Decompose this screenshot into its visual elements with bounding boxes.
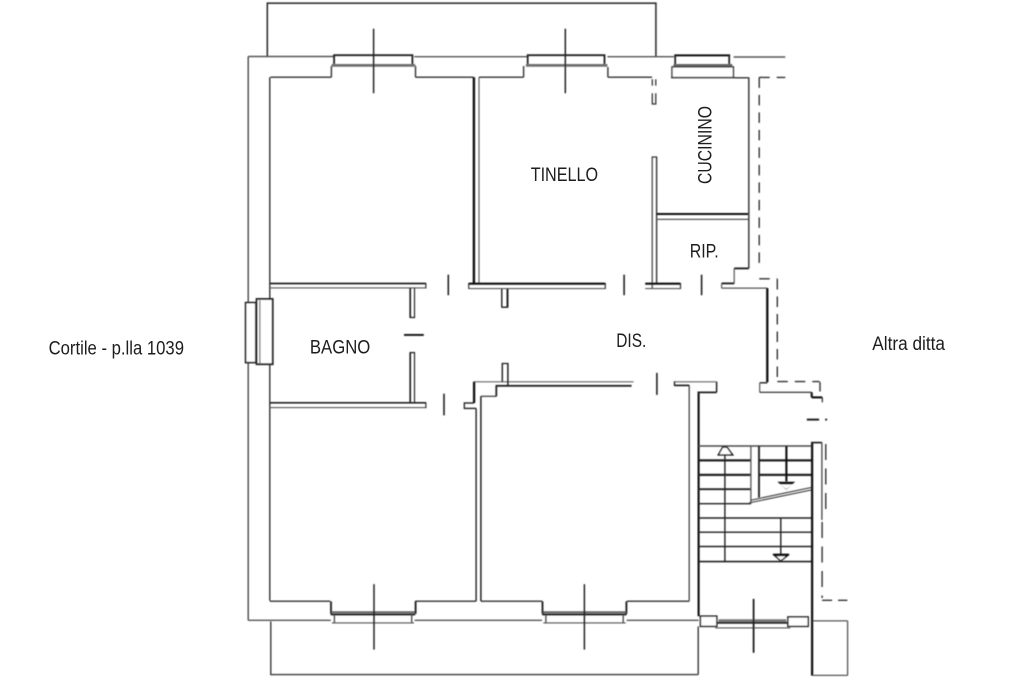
svg-text:RIP.: RIP. — [690, 242, 719, 263]
svg-text:Cortile - p.lla 1039: Cortile - p.lla 1039 — [49, 338, 184, 359]
svg-text:DIS.: DIS. — [616, 331, 646, 352]
svg-text:Altra ditta: Altra ditta — [872, 334, 945, 355]
svg-text:CUCININO: CUCININO — [696, 106, 717, 184]
svg-text:BAGNO: BAGNO — [310, 338, 370, 359]
svg-text:TINELLO: TINELLO — [531, 165, 598, 186]
